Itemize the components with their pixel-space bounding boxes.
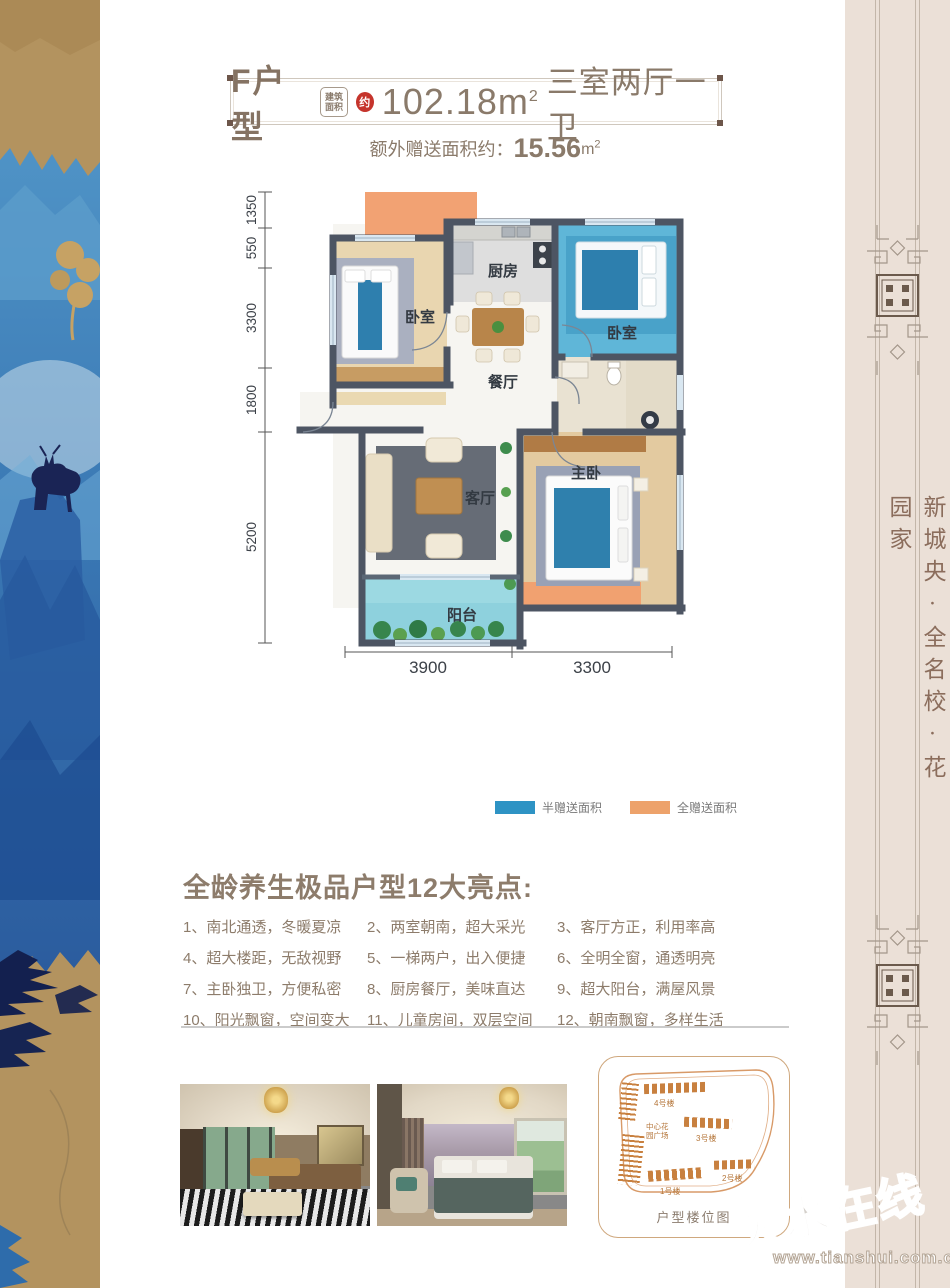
room-label-bedroom-right: 卧室 [607, 324, 637, 342]
highlight-item: 2、两室朝南，超大采光 [367, 916, 557, 937]
ornament-bottom [855, 915, 940, 1065]
dim-left-0: 1350 [244, 195, 259, 225]
dim-left-2: 3300 [244, 303, 259, 333]
watermark-url: www.tianshui.com.cn [773, 1248, 950, 1268]
building-label: 3号楼 [696, 1133, 716, 1144]
room-label-living: 客厅 [464, 489, 495, 507]
highlights-title: 全龄养生极品户型12大亮点: [183, 866, 533, 905]
highlight-item: 3、客厅方正，利用率高 [557, 916, 790, 937]
room-label-dining: 餐厅 [488, 373, 518, 391]
legend: 半赠送面积 全赠送面积 [495, 799, 737, 816]
floorplan: 厨房 卧室 卧室 餐厅 客厅 主卧 阳台 1350 550 3300 1800 … [235, 180, 700, 685]
building-label: 4号楼 [654, 1098, 674, 1109]
ornament-top [855, 225, 940, 375]
highlight-item: 6、全明全窗，通透明亮 [557, 947, 790, 968]
slogan-vertical: 新城央·全名校·花园家 [881, 495, 949, 805]
highlight-item: 8、厨房餐厅，美味直达 [367, 978, 557, 999]
building-area-badge: 建筑 面积 [320, 87, 347, 117]
header-title-box: F户型 建筑 面积 约 102.18m2 三室两厅一卫 [230, 78, 722, 125]
highlight-item: 9、超大阳台，满屋风景 [557, 978, 790, 999]
dim-left-4: 5200 [244, 522, 259, 552]
highlight-item: 5、一梯两户，出入便捷 [367, 947, 557, 968]
area-value: 102.18m2 [382, 81, 539, 123]
chandelier-icon [499, 1087, 519, 1109]
vertical-rule [875, 0, 876, 1288]
highlight-item: 4、超大楼距，无敌视野 [183, 947, 367, 968]
dim-bottom-0: 3900 [409, 658, 447, 677]
vertical-rule [879, 0, 880, 1288]
photo-living-room [180, 1084, 370, 1226]
building-label: 1号楼 [660, 1186, 680, 1197]
left-artwork-strip [0, 0, 100, 1288]
highlight-item: 7、主卧独卫，方便私密 [183, 978, 367, 999]
corner-tack [227, 75, 233, 81]
photo-bedroom [377, 1084, 567, 1226]
highlights-list: 1、南北通透，冬暖夏凉 2、两室朝南，超大采光 3、客厅方正，利用率高 4、超大… [183, 916, 790, 1030]
legend-half-gift: 半赠送面积 [495, 799, 602, 816]
approx-mark-icon: 约 [356, 92, 374, 112]
plaza-label: 中心花园广场 [646, 1122, 669, 1140]
highlight-item: 1、南北通透，冬暖夏凉 [183, 916, 367, 937]
chandelier-icon [264, 1087, 288, 1113]
section-divider [181, 1026, 789, 1028]
bonus-area-subtitle: 额外赠送面积约：15.56m2 [180, 133, 790, 164]
right-decor-strip: 新城央·全名校·花园家 [845, 0, 950, 1288]
room-label-bedroom-left: 卧室 [405, 308, 435, 326]
dim-left-3: 1800 [244, 385, 259, 415]
flyer-page: 新城央·全名校·花园家 F户型 建筑 面积 约 102.18m2 三室两厅一卫 … [0, 0, 950, 1288]
half-gift-swatch [495, 801, 535, 814]
corner-tack [227, 120, 233, 126]
room-label-balcony: 阳台 [447, 606, 477, 624]
dim-bottom-1: 3300 [573, 658, 611, 677]
building-label: 2号楼 [722, 1173, 742, 1184]
legend-full-gift: 全赠送面积 [630, 799, 737, 816]
corner-tack [717, 75, 723, 81]
room-label-kitchen: 厨房 [488, 262, 518, 280]
room-label-master: 主卧 [571, 464, 601, 482]
dim-left-1: 550 [244, 237, 259, 260]
seal-ornament [877, 275, 918, 316]
seal-ornament [877, 965, 918, 1006]
building-row-2 [714, 1159, 754, 1169]
full-gift-swatch [630, 801, 670, 814]
corner-tack [717, 120, 723, 126]
